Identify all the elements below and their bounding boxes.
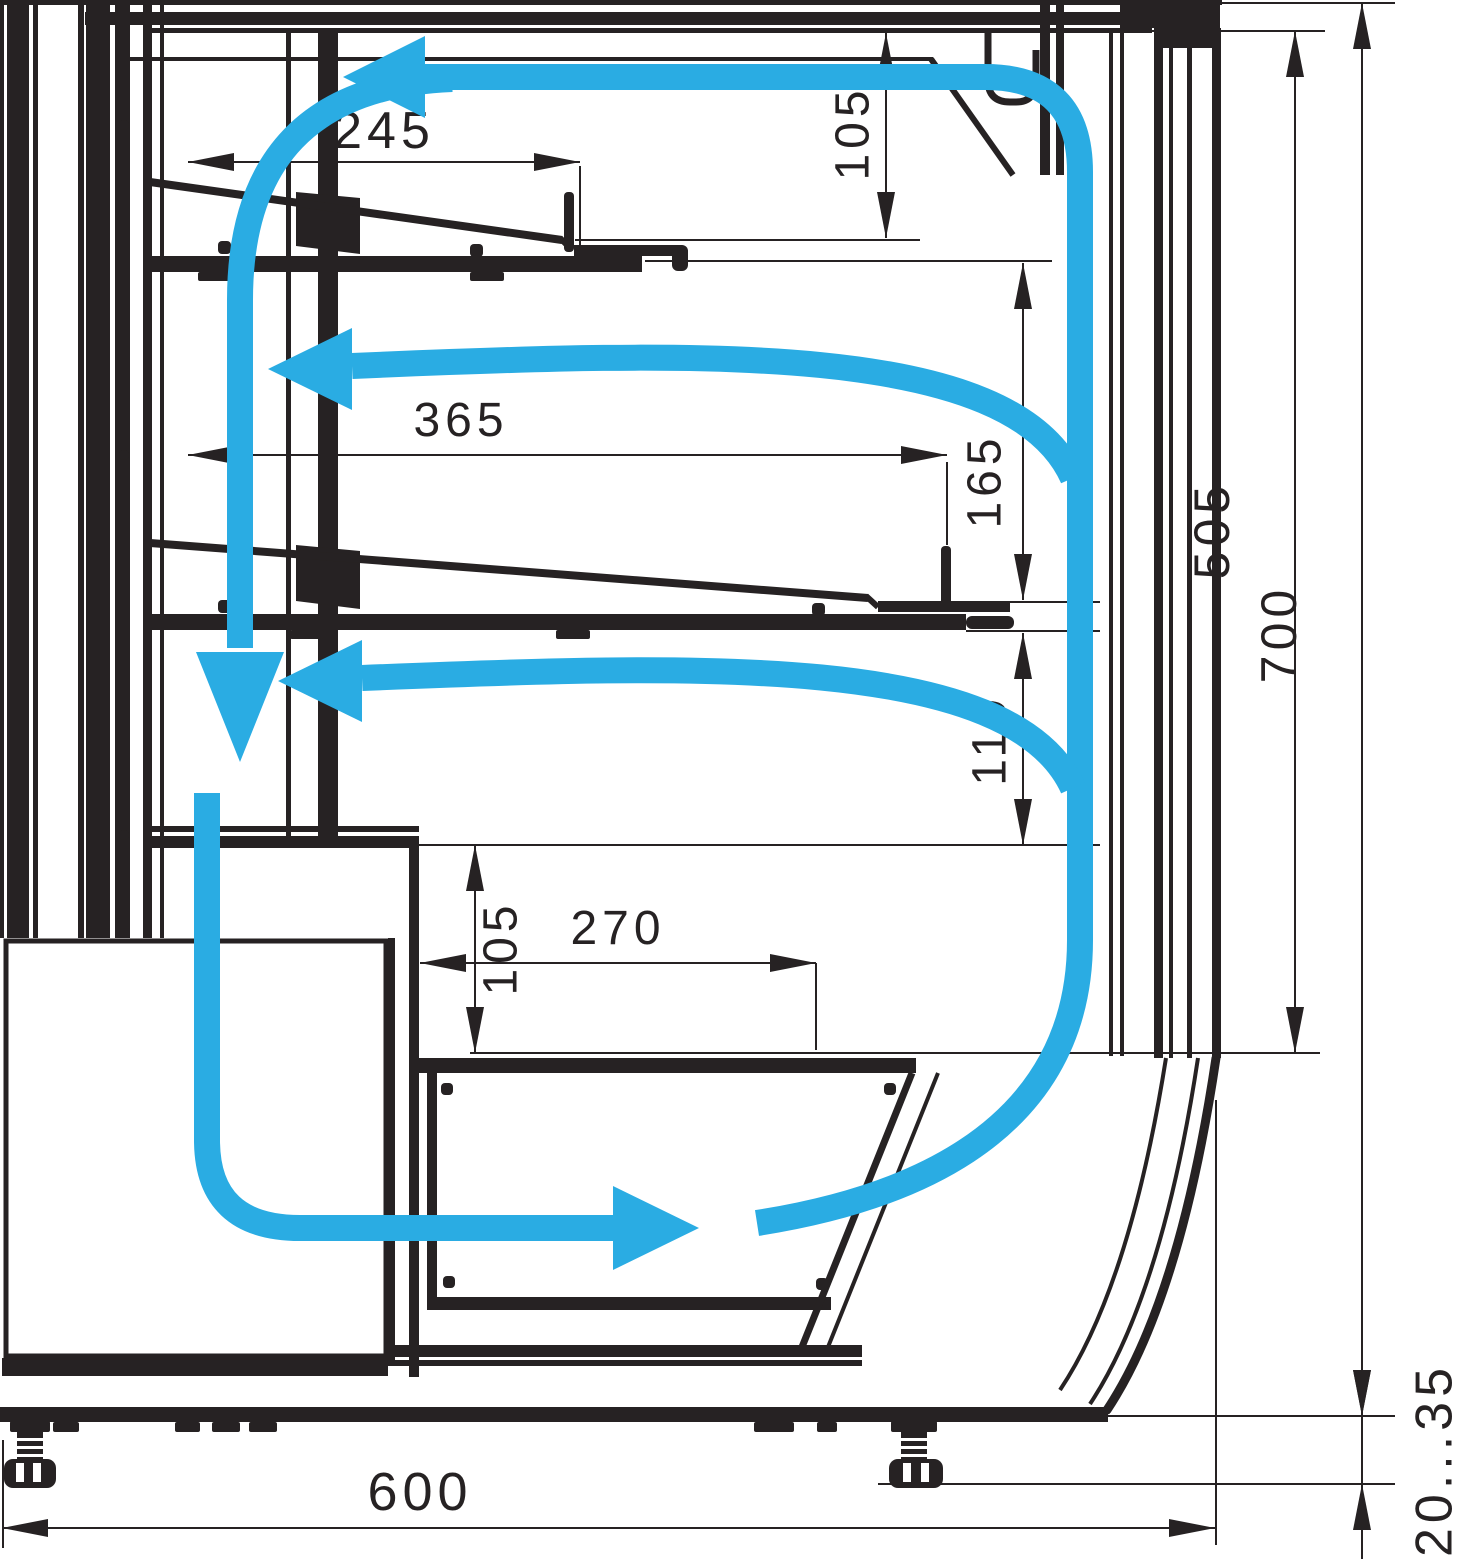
airflow-front-riser-and-top-run xyxy=(421,77,1080,1223)
display-case-cross-section: 245 105 365 165 110 105 270 xyxy=(0,0,1468,1559)
dim-overall-depth: 600 xyxy=(2,1462,1215,1537)
airflow-arrow-right xyxy=(613,1186,699,1270)
airflow-arrow-down xyxy=(196,652,284,762)
dim-canopy-clearance: 105 xyxy=(827,33,895,238)
middle-shelf xyxy=(150,543,1014,639)
dim-well-height: 105 xyxy=(466,845,528,1053)
dim-label: 165 xyxy=(959,433,1012,528)
well-bolt xyxy=(443,1276,455,1288)
dim-label: 105 xyxy=(475,900,528,995)
leveling-foot-right xyxy=(889,1421,943,1488)
well-bolt xyxy=(441,1083,453,1095)
back-wall xyxy=(0,0,164,938)
dim-label: 365 xyxy=(413,394,508,447)
shelf-bolt xyxy=(812,603,825,616)
dim-label: 700 xyxy=(1251,585,1307,683)
dim-label: 505 xyxy=(1184,481,1240,579)
well-bolt xyxy=(884,1083,896,1095)
leveling-foot-left xyxy=(4,1421,56,1488)
dim-label: 600 xyxy=(367,1462,472,1522)
wall-bolt xyxy=(119,830,129,840)
well-bolt xyxy=(816,1278,828,1290)
wall-bolt xyxy=(119,120,129,130)
dim-label: 105 xyxy=(827,85,880,180)
dim-foot-adjust-range: 20...35 xyxy=(1353,1330,1464,1559)
shelf-front-pin xyxy=(941,546,951,606)
dim-inner-height: 505 xyxy=(1184,31,1304,1053)
airflow-arrow-mid-upper xyxy=(268,328,352,410)
shelf-front-pin xyxy=(564,192,574,252)
dim-label: 20...35 xyxy=(1406,1363,1464,1557)
dim-middle-shelf-depth: 365 xyxy=(188,394,947,464)
wall-bolt xyxy=(119,450,129,460)
shelf-bolt xyxy=(470,244,483,257)
dim-label: 270 xyxy=(570,902,665,955)
dim-top-shelf-depth: 245 xyxy=(188,102,580,171)
dim-overall-height: 700 xyxy=(1251,3,1371,1416)
shelf-bolt xyxy=(218,241,231,254)
front-lower-slope-panel xyxy=(1060,1058,1216,1410)
technical-drawing-page: 245 105 365 165 110 105 270 xyxy=(0,0,1468,1559)
